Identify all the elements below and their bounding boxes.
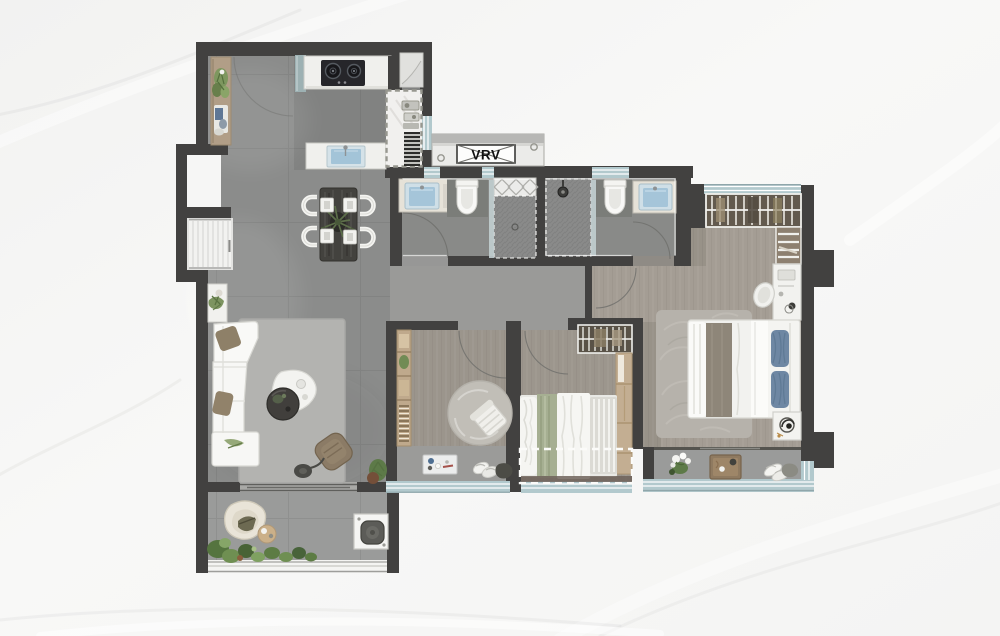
svg-text:VRV: VRV	[471, 148, 500, 163]
